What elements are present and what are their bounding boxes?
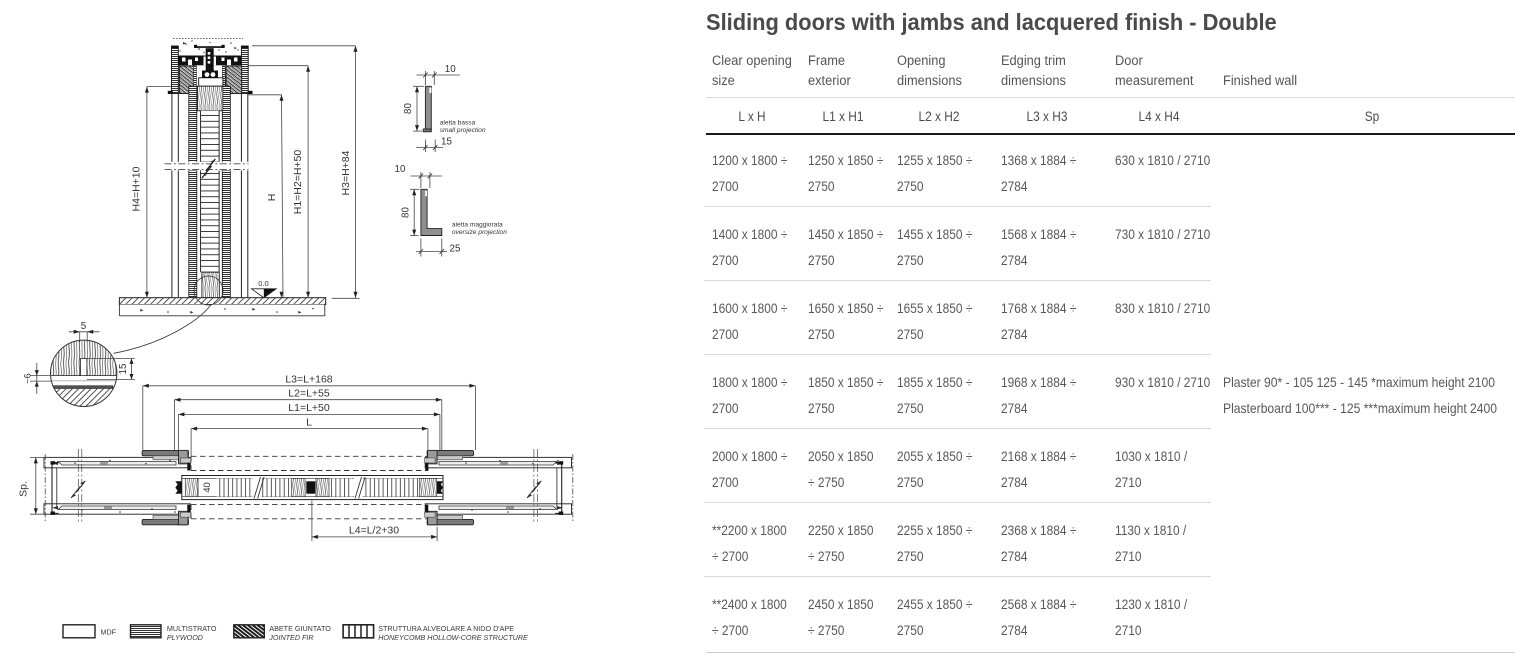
svg-text:0.0: 0.0 xyxy=(258,279,268,288)
svg-text:15: 15 xyxy=(441,137,452,148)
svg-text:10: 10 xyxy=(395,164,406,175)
svg-text:MULTISTRATO: MULTISTRATO xyxy=(167,624,217,633)
svg-text:MDF: MDF xyxy=(101,628,117,637)
svg-text:STRUTTURA ALVEOLARE A NIDO D'A: STRUTTURA ALVEOLARE A NIDO D'APE xyxy=(378,624,514,633)
svg-text:L1=L+50: L1=L+50 xyxy=(288,402,330,414)
svg-text:H1=H2=H+50: H1=H2=H+50 xyxy=(292,150,304,215)
svg-text:10: 10 xyxy=(445,64,456,75)
svg-text:~6: ~6 xyxy=(23,373,33,383)
svg-text:25: 25 xyxy=(450,244,461,255)
svg-text:aletta bassa: aletta bassa xyxy=(440,120,476,127)
svg-text:80: 80 xyxy=(403,103,414,114)
svg-text:L4=L/2+30: L4=L/2+30 xyxy=(349,525,399,537)
svg-text:aletta maggiorata: aletta maggiorata xyxy=(452,222,503,229)
svg-text:L2=L+55: L2=L+55 xyxy=(288,388,330,400)
svg-text:JOINTED FIR: JOINTED FIR xyxy=(268,633,313,642)
svg-text:80: 80 xyxy=(400,207,411,218)
svg-text:HONEYCOMB HOLLOW-CORE STRUCTUR: HONEYCOMB HOLLOW-CORE STRUCTURE xyxy=(378,633,528,642)
svg-text:H3=H+84: H3=H+84 xyxy=(340,150,352,195)
svg-text:oversize projection: oversize projection xyxy=(452,229,507,236)
svg-text:H: H xyxy=(266,194,278,202)
svg-text:Sp.: Sp. xyxy=(18,481,30,497)
svg-text:ABETE GIUNTATO: ABETE GIUNTATO xyxy=(269,624,331,633)
svg-text:small projection: small projection xyxy=(440,127,486,134)
svg-text:15: 15 xyxy=(118,363,129,374)
svg-text:L3=L+168: L3=L+168 xyxy=(285,374,332,386)
svg-text:40: 40 xyxy=(202,482,213,493)
svg-text:L: L xyxy=(306,416,312,428)
svg-text:H4=H+10: H4=H+10 xyxy=(131,166,143,211)
svg-text:PLYWOOD: PLYWOOD xyxy=(167,633,203,642)
svg-text:5: 5 xyxy=(81,321,87,332)
